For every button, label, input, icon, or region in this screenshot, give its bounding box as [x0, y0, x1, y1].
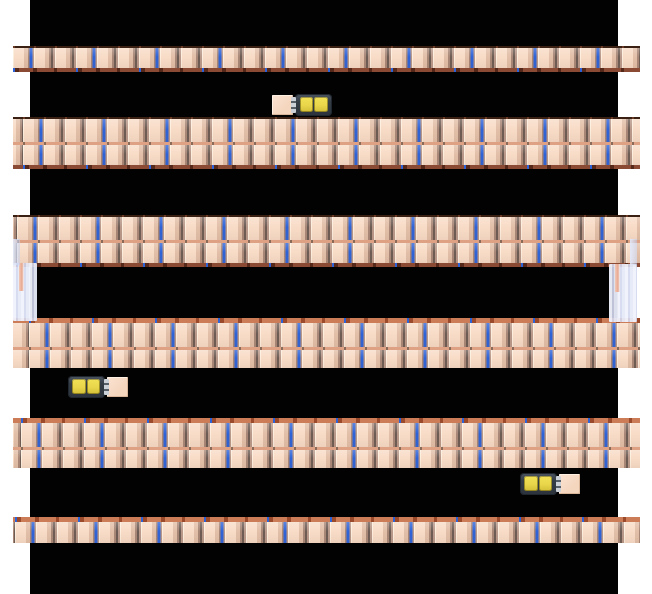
robot-3[interactable] [520, 473, 580, 495]
robot-body-pane [300, 97, 313, 112]
carried-box [272, 95, 293, 115]
shelf-row-4 [13, 318, 640, 368]
box-band-rear [13, 217, 640, 240]
robot-body-pane [72, 379, 86, 394]
robot-fork-icon [291, 97, 296, 113]
robot-fork-icon [104, 379, 109, 395]
warehouse-scene [0, 0, 652, 594]
robot-chassis [520, 473, 557, 495]
robot-chassis [295, 94, 332, 116]
shelf-row-1 [13, 46, 640, 72]
robot-2[interactable] [68, 376, 128, 398]
box-band [13, 48, 640, 68]
rack-upright-accent [615, 264, 620, 292]
robot-body-pane [314, 97, 328, 112]
robot-body-pane [87, 379, 100, 394]
shelf-row-3 [13, 215, 640, 267]
shelf-row-5 [13, 418, 640, 468]
rack-upright-left [13, 263, 37, 321]
box-band-rear [13, 423, 640, 447]
warehouse-floor [30, 0, 618, 594]
rack-upright-hint-1 [13, 239, 20, 265]
carried-box [559, 474, 580, 494]
box-band-front [13, 450, 640, 468]
shelf-front-lip [13, 165, 640, 169]
shelf-row-2 [13, 117, 640, 169]
carried-box [107, 377, 128, 397]
rack-upright-hint-2 [630, 239, 637, 265]
robot-body-pane [539, 476, 552, 491]
box-band-rear [13, 323, 640, 347]
box-band-front [13, 350, 640, 368]
robot-fork-icon [556, 476, 561, 492]
rack-upright-right [609, 264, 637, 322]
box-band [13, 522, 640, 543]
box-band-front [13, 145, 640, 165]
shelf-row-6 [13, 517, 640, 543]
shelf-front-lip [13, 68, 640, 72]
box-band-rear [13, 119, 640, 142]
rack-upright-accent [19, 263, 24, 291]
robot-body-pane [524, 476, 538, 491]
box-band-front [13, 243, 640, 263]
shelf-front-lip [13, 263, 640, 267]
robot-chassis [68, 376, 105, 398]
robot-1[interactable] [272, 94, 332, 116]
